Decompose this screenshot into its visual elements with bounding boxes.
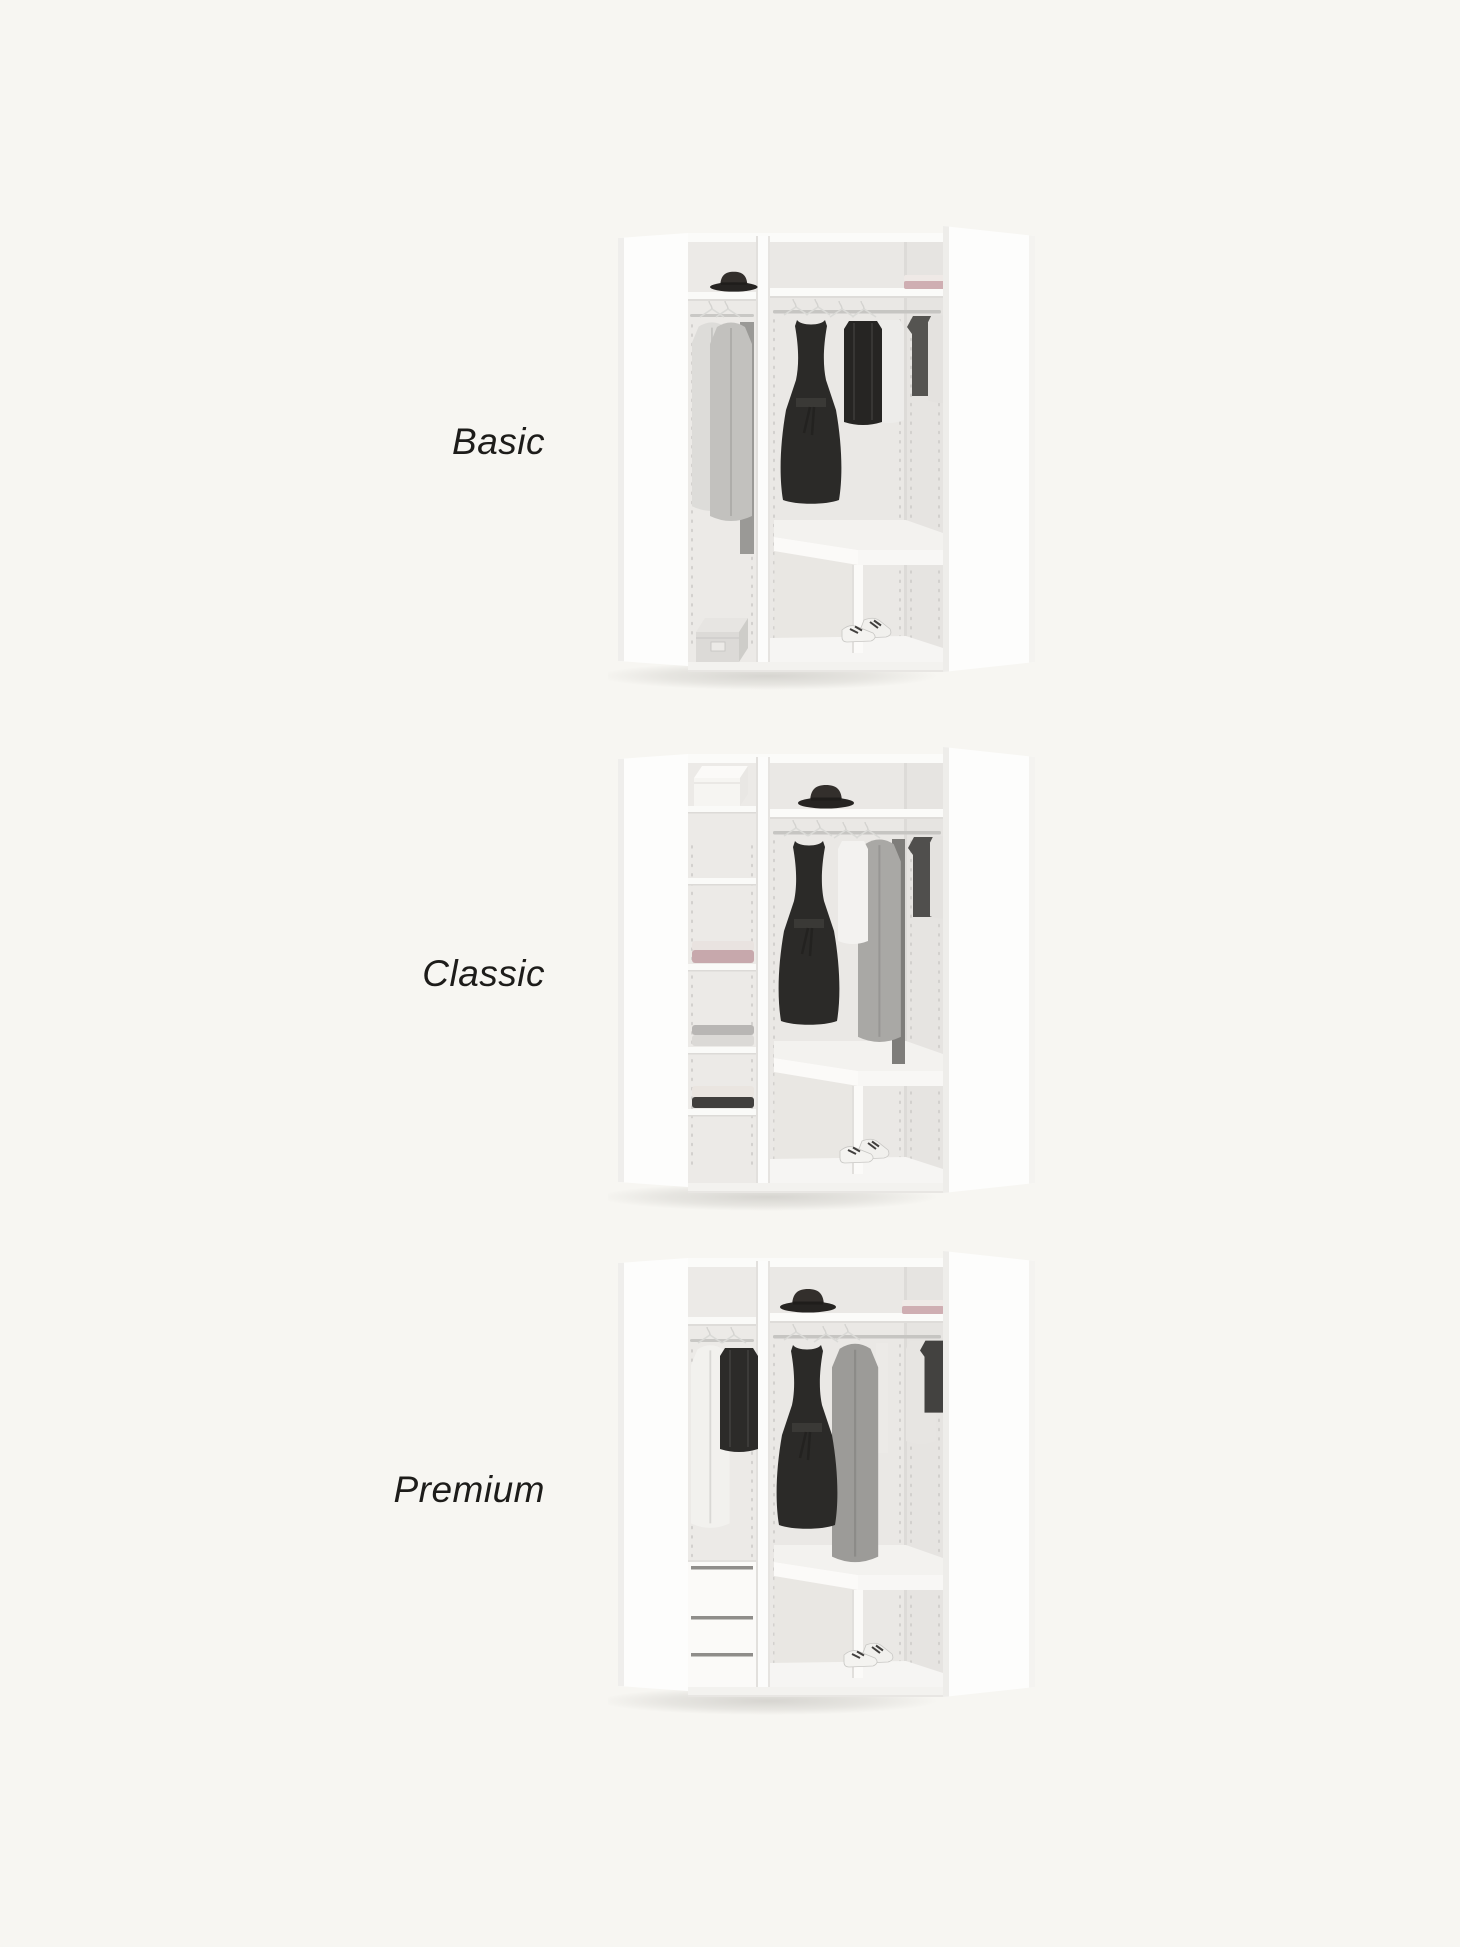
gray-coat-icon: [710, 323, 752, 522]
variant-label-premium: Premium: [145, 1468, 545, 1512]
wardrobe-image-classic: [608, 741, 1045, 1226]
folded-pink-towels-icon: [692, 941, 754, 963]
folded-gray-clothes-icon: [692, 1025, 754, 1046]
wardrobe-right-wing: [943, 1251, 1035, 1697]
wardrobe-right-wing: [943, 747, 1035, 1193]
white-blouse-icon: [838, 841, 868, 944]
folded-cream-dark-clothes-icon: [692, 1086, 754, 1108]
wardrobe-image-basic: [608, 220, 1045, 705]
black-sweater-icon: [844, 321, 882, 425]
storage-box-icon: [696, 618, 748, 662]
folded-pink-textile-icon: [902, 1300, 944, 1314]
folded-pink-textile-icon: [904, 275, 946, 289]
drawers-icon: [688, 1560, 756, 1687]
wardrobe-frame: [618, 233, 943, 672]
variant-label-classic: Classic: [145, 952, 545, 996]
gray-coat-icon: [832, 1344, 878, 1562]
wardrobe-right-wing: [943, 226, 1035, 672]
wardrobe-image-premium: [608, 1245, 1045, 1730]
white-box-icon: [694, 766, 748, 806]
wardrobe-variant-comparison: Basic: [0, 0, 1460, 1947]
black-sweater-icon: [720, 1348, 758, 1452]
variant-label-basic: Basic: [145, 420, 545, 464]
